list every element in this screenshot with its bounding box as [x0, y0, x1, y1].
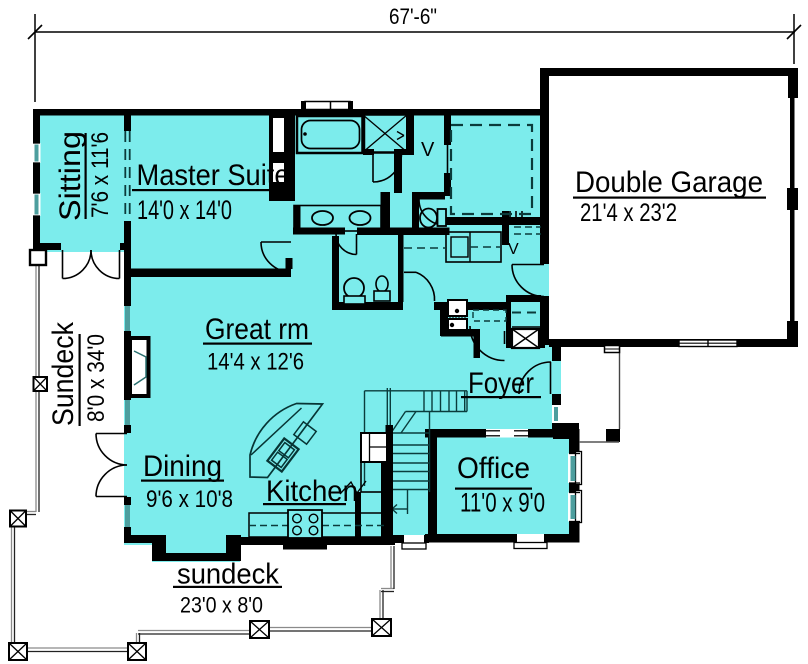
svg-text:Double Garage: Double Garage — [575, 166, 763, 199]
svg-text:Dining: Dining — [143, 450, 222, 483]
svg-text:sundeck: sundeck — [177, 559, 279, 591]
svg-text:9'6 x 10'8: 9'6 x 10'8 — [146, 486, 233, 513]
svg-text:Sitting: Sitting — [54, 131, 87, 221]
svg-text:23'0 x 8'0: 23'0 x 8'0 — [180, 593, 263, 618]
svg-text:14'0 x 14'0: 14'0 x 14'0 — [137, 195, 232, 225]
svg-text:67'-6": 67'-6" — [389, 4, 437, 29]
svg-text:V: V — [508, 241, 519, 258]
svg-text:Foyer: Foyer — [468, 367, 534, 400]
svg-text:11'0 x 9'0: 11'0 x 9'0 — [460, 488, 545, 518]
svg-text:V: V — [421, 139, 435, 161]
svg-text:Master Suite: Master Suite — [137, 159, 290, 192]
svg-text:Office: Office — [457, 452, 530, 485]
svg-text:14'4 x 12'6: 14'4 x 12'6 — [207, 349, 304, 376]
svg-text:7'6 x 11'6: 7'6 x 11'6 — [87, 132, 114, 218]
svg-text:21'4 x 23'2: 21'4 x 23'2 — [580, 199, 677, 227]
svg-text:Great rm: Great rm — [205, 313, 309, 346]
svg-text:8'0 x 34'0: 8'0 x 34'0 — [83, 334, 110, 422]
svg-text:Sundeck: Sundeck — [47, 321, 80, 426]
